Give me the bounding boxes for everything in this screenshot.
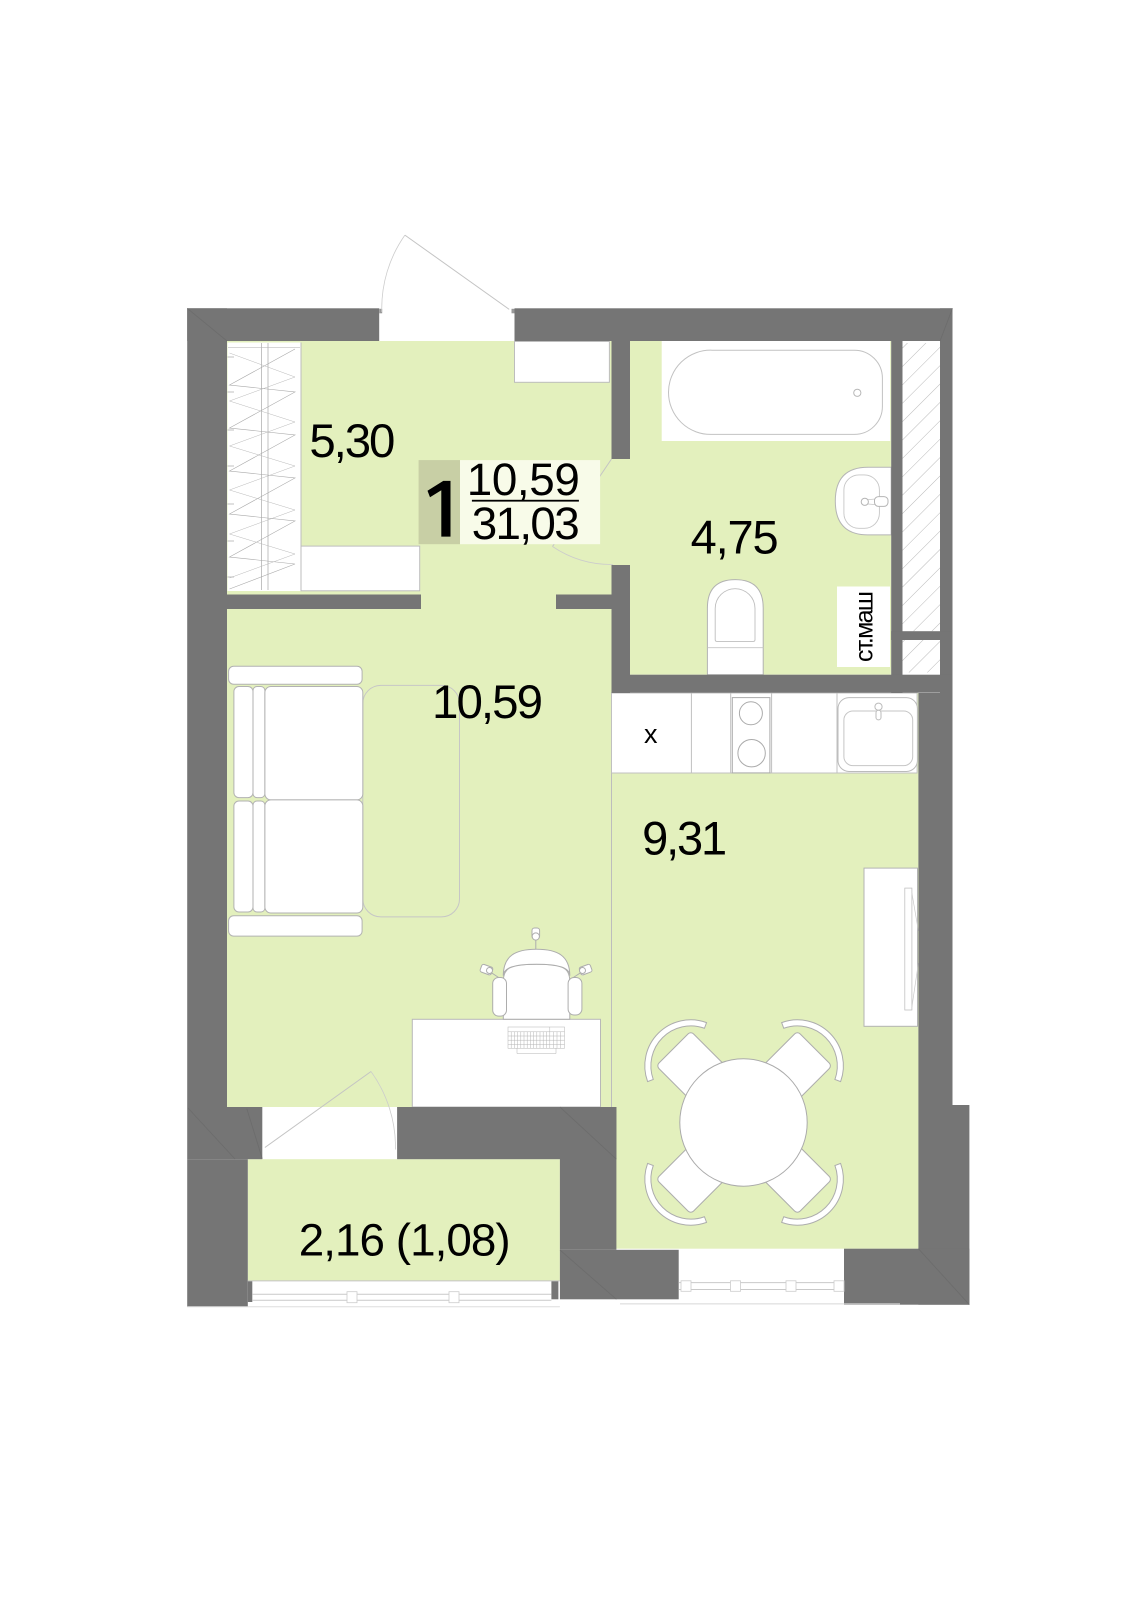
svg-text:5,30: 5,30 xyxy=(309,415,395,468)
svg-text:2,16 (1,08): 2,16 (1,08) xyxy=(299,1215,511,1266)
svg-text:31,03: 31,03 xyxy=(472,498,580,549)
svg-text:x: x xyxy=(644,719,658,749)
svg-text:4,75: 4,75 xyxy=(691,510,779,563)
svg-text:10,59: 10,59 xyxy=(432,676,543,729)
svg-text:ст.маш: ст.маш xyxy=(851,591,879,662)
svg-text:9,31: 9,31 xyxy=(642,812,727,865)
